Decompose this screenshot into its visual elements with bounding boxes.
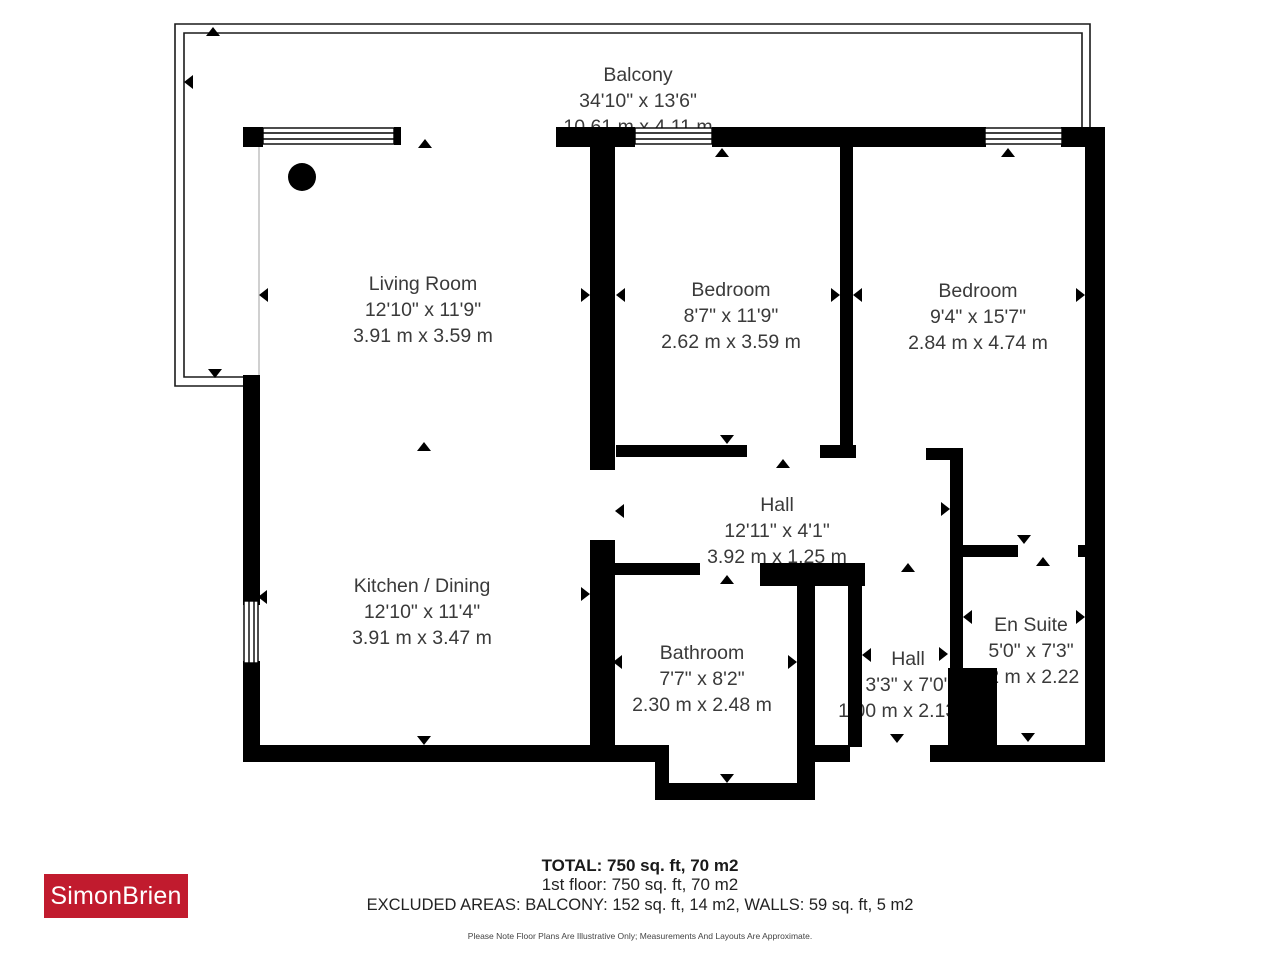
room-name: Balcony: [563, 62, 712, 88]
room-dims-metric: 1.00 m x 2.13 m: [838, 698, 978, 724]
room-dims-metric: 3.91 m x 3.59 m: [353, 323, 493, 349]
room-name: Bedroom: [908, 278, 1048, 304]
room-dims-imperial: 12'10" x 11'9": [353, 297, 493, 323]
wall: [613, 563, 700, 575]
wall: [1078, 545, 1105, 557]
wall: [243, 745, 669, 762]
wall: [590, 143, 615, 470]
room-label-en-suite: En Suite 5'0" x 7'3" 1.52 m x 2.22 m: [961, 612, 1101, 690]
room-dims-imperial: 3'3" x 7'0": [838, 672, 978, 698]
window: [985, 128, 1062, 144]
wall: [616, 445, 747, 457]
wall: [820, 445, 856, 458]
room-name: Kitchen / Dining: [352, 573, 492, 599]
room-name: Bedroom: [661, 277, 801, 303]
room-dims-metric: 2.62 m x 3.59 m: [661, 329, 801, 355]
room-label-hall: Hall 12'11" x 4'1" 3.92 m x 1.25 m: [707, 492, 847, 570]
disclaimer-text: Please Note Floor Plans Are Illustrative…: [0, 931, 1280, 941]
room-dims-metric: 2.30 m x 2.48 m: [632, 692, 772, 718]
room-label-living-room: Living Room 12'10" x 11'9" 3.91 m x 3.59…: [353, 271, 493, 349]
room-name: Hall: [838, 646, 978, 672]
total-area-text: TOTAL: 750 sq. ft, 70 m2: [0, 856, 1280, 875]
room-dims-imperial: 12'11" x 4'1": [707, 518, 847, 544]
room-label-hall-2: Hall 3'3" x 7'0" 1.00 m x 2.13 m: [838, 646, 978, 724]
window: [263, 128, 394, 144]
room-name: En Suite: [961, 612, 1101, 638]
room-dims-metric: 3.92 m x 1.25 m: [707, 544, 847, 570]
room-dims-imperial: 7'7" x 8'2": [632, 666, 772, 692]
wall: [655, 745, 669, 795]
column: [288, 163, 316, 191]
room-dims-imperial: 9'4" x 15'7": [908, 304, 1048, 330]
room-dims-imperial: 34'10" x 13'6": [563, 88, 712, 114]
room-label-balcony: Balcony 34'10" x 13'6" 10.61 m x 4.11 m: [563, 62, 712, 140]
room-dims-metric: 3.91 m x 3.47 m: [352, 625, 492, 651]
wall: [394, 127, 401, 145]
wall: [243, 375, 260, 605]
wall: [926, 448, 963, 460]
floorplan-page: { "branding": { "logo_text": "SimonBrien…: [0, 0, 1280, 960]
room-dims-metric: 1.52 m x 2.22 m: [961, 664, 1101, 690]
floor-area-text: 1st floor: 750 sq. ft, 70 m2: [0, 875, 1280, 895]
excluded-areas-text: EXCLUDED AREAS: BALCONY: 152 sq. ft, 14 …: [0, 895, 1280, 915]
room-name: Living Room: [353, 271, 493, 297]
wall: [797, 563, 815, 800]
room-dims-imperial: 8'7" x 11'9": [661, 303, 801, 329]
wall: [963, 545, 1018, 557]
wall: [243, 661, 260, 762]
summary-footer: TOTAL: 750 sq. ft, 70 m2 1st floor: 750 …: [0, 856, 1280, 941]
wall: [655, 783, 815, 800]
wall: [840, 143, 853, 456]
room-label-kitchen-dining: Kitchen / Dining 12'10" x 11'4" 3.91 m x…: [352, 573, 492, 651]
simonbrien-logo: SimonBrien: [44, 874, 188, 918]
wall: [590, 540, 615, 762]
wall: [1061, 127, 1105, 147]
room-label-bedroom-2: Bedroom 9'4" x 15'7" 2.84 m x 4.74 m: [908, 278, 1048, 356]
room-dims-metric: 2.84 m x 4.74 m: [908, 330, 1048, 356]
logo-text: SimonBrien: [50, 882, 181, 911]
floorplan-drawing: [0, 0, 1280, 960]
room-label-bathroom: Bathroom 7'7" x 8'2" 2.30 m x 2.48 m: [632, 640, 772, 718]
room-name: Hall: [707, 492, 847, 518]
wall: [243, 127, 263, 147]
window: [244, 601, 258, 663]
room-dims-imperial: 12'10" x 11'4": [352, 599, 492, 625]
room-dims-imperial: 5'0" x 7'3": [961, 638, 1101, 664]
wall: [930, 745, 1105, 762]
room-name: Bathroom: [632, 640, 772, 666]
wall: [797, 745, 850, 762]
room-label-bedroom-1: Bedroom 8'7" x 11'9" 2.62 m x 3.59 m: [661, 277, 801, 355]
wall: [712, 127, 986, 147]
room-dims-metric: 10.61 m x 4.11 m: [563, 114, 712, 140]
